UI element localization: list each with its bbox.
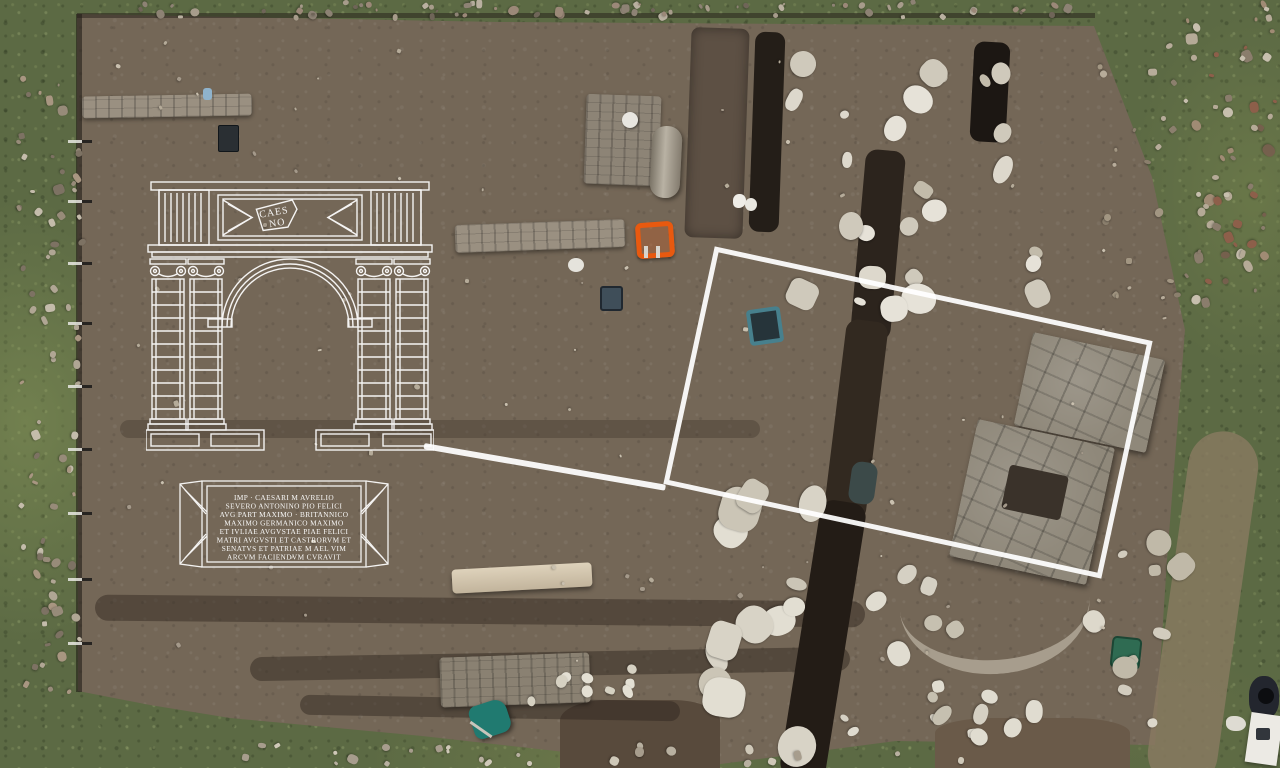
stone	[929, 702, 955, 728]
stone	[1096, 599, 1101, 603]
stone	[30, 429, 41, 441]
stone	[482, 188, 484, 192]
stone	[1221, 277, 1230, 286]
stone	[939, 13, 947, 21]
stone	[1079, 606, 1109, 636]
survey-peg	[68, 448, 82, 451]
stone	[31, 568, 41, 579]
stone	[1232, 218, 1243, 229]
stone	[1253, 289, 1257, 294]
stone	[896, 213, 922, 239]
stone	[334, 761, 339, 766]
stone	[32, 480, 39, 485]
stone	[37, 419, 42, 425]
stone	[40, 538, 46, 545]
stone	[170, 4, 175, 9]
stone	[767, 756, 777, 766]
stone	[1161, 296, 1166, 301]
stone	[1254, 17, 1257, 21]
stone	[625, 662, 639, 676]
stone	[893, 750, 900, 757]
stone	[464, 3, 472, 9]
stone	[638, 3, 641, 6]
stone	[1152, 625, 1172, 640]
stone	[47, 590, 60, 603]
stone	[70, 612, 81, 623]
stone	[28, 305, 38, 315]
stone	[624, 574, 630, 579]
stone	[346, 753, 360, 766]
stone	[1213, 105, 1219, 110]
stone	[1167, 278, 1174, 283]
stone	[49, 557, 62, 570]
stone	[604, 685, 616, 695]
stone	[352, 5, 357, 9]
stone	[721, 109, 724, 111]
stone	[1249, 190, 1259, 199]
stone	[38, 90, 42, 94]
stone	[293, 168, 298, 173]
stone	[242, 753, 251, 762]
stone	[1126, 258, 1132, 264]
stone	[324, 8, 334, 18]
inscription-line: ARCVM FACIENDVM CVRAVIT	[227, 553, 341, 562]
stone	[737, 5, 739, 8]
stone	[42, 621, 47, 627]
stone	[1190, 53, 1198, 62]
stone	[1161, 115, 1167, 120]
stone	[57, 84, 60, 87]
stone	[50, 241, 59, 248]
stone	[778, 60, 780, 63]
stone	[576, 659, 578, 662]
stone	[920, 197, 950, 225]
stone	[476, 0, 482, 8]
stone	[1227, 147, 1234, 154]
stone	[49, 284, 59, 294]
stone	[1146, 529, 1173, 557]
stone	[887, 4, 892, 11]
stone	[1117, 549, 1129, 559]
stone	[624, 265, 629, 270]
stone	[409, 749, 413, 754]
stone	[785, 139, 790, 144]
survey-peg	[68, 578, 82, 581]
stone	[665, 745, 678, 757]
stone	[435, 9, 439, 13]
stone	[1168, 125, 1177, 134]
stone	[304, 613, 307, 617]
stone	[77, 238, 87, 248]
stone	[462, 12, 468, 18]
survey-peg	[68, 385, 82, 388]
stone	[579, 671, 594, 685]
stone	[258, 742, 266, 748]
stone	[1183, 273, 1189, 279]
stone	[668, 9, 673, 14]
stone	[1219, 154, 1226, 162]
stone	[945, 604, 950, 609]
stone	[19, 75, 27, 83]
stone	[1204, 277, 1213, 284]
stone	[532, 10, 541, 19]
stone	[396, 48, 401, 53]
stone	[839, 193, 845, 198]
stone	[191, 8, 200, 17]
stone	[358, 3, 363, 8]
stone	[991, 121, 1015, 147]
stone	[175, 642, 181, 648]
stone	[296, 7, 304, 15]
stone	[30, 190, 35, 194]
stone	[839, 713, 850, 723]
stone	[1174, 291, 1181, 297]
stone	[252, 151, 257, 157]
stone	[1201, 297, 1211, 308]
stone	[38, 553, 44, 560]
stone	[160, 480, 164, 484]
stone	[879, 112, 909, 145]
stone	[580, 282, 583, 285]
stone	[49, 503, 58, 511]
survey-peg	[68, 262, 82, 265]
stone	[619, 454, 622, 458]
stone	[115, 64, 121, 70]
stone	[919, 575, 939, 597]
stone	[1250, 102, 1260, 114]
stone	[880, 554, 883, 557]
stone	[516, 752, 522, 758]
stone	[1101, 625, 1106, 630]
stone	[137, 343, 141, 347]
stone	[422, 2, 430, 10]
stone	[551, 565, 556, 570]
stone	[744, 744, 755, 756]
stone	[49, 249, 56, 255]
stone	[635, 747, 644, 758]
stone	[273, 742, 280, 748]
stone	[782, 595, 806, 617]
arch-drawing-overlay: CAES NO	[146, 179, 434, 452]
stone	[832, 4, 835, 7]
stone	[608, 755, 620, 767]
stone	[1229, 155, 1237, 162]
stone	[54, 630, 64, 640]
stone	[1115, 294, 1119, 299]
stone	[894, 561, 921, 588]
stone	[1154, 144, 1162, 152]
stone	[924, 651, 928, 655]
stone	[365, 1, 371, 8]
stone	[493, 6, 497, 10]
stone	[127, 505, 132, 510]
stone	[990, 61, 1012, 85]
stone	[58, 168, 65, 175]
stone	[262, 8, 267, 13]
stone	[884, 637, 914, 669]
stone	[48, 218, 56, 228]
stone	[1233, 242, 1238, 247]
stone	[1011, 183, 1016, 188]
stone	[20, 265, 27, 273]
stone	[294, 14, 300, 21]
stone	[783, 87, 805, 113]
stone	[1183, 98, 1188, 103]
stone	[18, 132, 25, 139]
stone	[957, 757, 964, 765]
stone	[32, 451, 41, 460]
stone	[436, 744, 444, 752]
stone	[57, 106, 68, 117]
stone	[1258, 250, 1270, 262]
stone	[1272, 99, 1277, 103]
stone	[584, 9, 590, 15]
survey-peg	[68, 512, 82, 515]
stone	[52, 183, 65, 196]
stone	[737, 592, 743, 598]
aerial-photo: CAES NO	[0, 0, 1280, 768]
stone	[178, 15, 183, 19]
stone	[1260, 142, 1277, 159]
stone	[155, 8, 166, 19]
stone	[505, 403, 508, 406]
stone	[1270, 29, 1275, 34]
stone	[785, 576, 809, 594]
stone	[28, 290, 37, 299]
stone	[429, 4, 435, 11]
stone	[1147, 717, 1159, 728]
stone	[561, 582, 564, 585]
stone	[977, 72, 992, 89]
stone	[40, 662, 46, 669]
stone	[31, 663, 38, 670]
stone	[56, 211, 66, 221]
stone	[479, 756, 484, 762]
stone	[1239, 250, 1246, 259]
stone	[1117, 683, 1133, 696]
stone	[311, 13, 315, 15]
stone	[1209, 73, 1215, 77]
stone	[50, 351, 58, 359]
stone	[1133, 128, 1137, 133]
stone	[1265, 14, 1273, 22]
stone	[988, 152, 1016, 186]
stone	[72, 492, 76, 497]
stone	[1263, 6, 1269, 12]
inscription-overlay: IMP · CAESARI M AVRELIO SEVERO ANTONINO …	[176, 476, 392, 572]
stone	[1171, 79, 1178, 86]
stone	[393, 14, 398, 21]
stone	[704, 4, 710, 12]
stone	[943, 618, 966, 641]
stone	[1241, 259, 1254, 273]
stone	[839, 110, 850, 120]
stone	[1246, 239, 1258, 250]
stone	[41, 315, 49, 325]
survey-peg	[68, 200, 82, 203]
stone	[1267, 112, 1274, 120]
stone	[58, 454, 67, 462]
stone	[56, 650, 67, 662]
stone	[622, 4, 630, 13]
stone	[773, 13, 778, 18]
stone	[879, 656, 885, 662]
stone	[73, 325, 78, 330]
stone	[34, 207, 45, 218]
stone	[1212, 195, 1223, 207]
stone	[971, 702, 991, 726]
stone	[317, 77, 320, 80]
survey-peg	[68, 322, 82, 325]
stone	[18, 380, 24, 386]
stone	[1211, 222, 1222, 232]
stone	[15, 139, 22, 145]
stone	[77, 214, 82, 220]
stone	[806, 561, 809, 564]
stone	[648, 577, 654, 583]
stone	[1127, 285, 1132, 289]
stone	[1212, 175, 1219, 180]
stone	[1098, 64, 1103, 70]
stone	[333, 750, 338, 755]
stone	[1163, 548, 1199, 584]
stone	[74, 150, 83, 158]
stone	[1148, 68, 1157, 76]
stone	[742, 2, 750, 10]
stone	[294, 108, 297, 112]
survey-peg	[68, 140, 82, 143]
stone	[429, 13, 434, 20]
stone	[773, 721, 822, 768]
stone	[164, 40, 168, 45]
stone	[23, 681, 30, 689]
stone	[1114, 148, 1118, 152]
stone	[1185, 32, 1198, 44]
stone	[761, 565, 763, 567]
stone	[73, 359, 81, 368]
stone	[21, 153, 28, 160]
stone	[71, 187, 77, 193]
stone	[18, 502, 25, 509]
stone	[65, 304, 71, 312]
stone	[1162, 317, 1166, 320]
stone	[1247, 183, 1254, 190]
stone	[28, 473, 34, 480]
stone	[785, 45, 822, 82]
stone	[580, 684, 594, 699]
stone	[842, 151, 853, 168]
stone	[73, 333, 82, 342]
stone	[1261, 51, 1272, 62]
stone	[507, 4, 520, 16]
stone	[864, 8, 875, 19]
stone	[912, 179, 936, 201]
stone	[1148, 564, 1161, 576]
stone	[1025, 700, 1042, 723]
stone	[67, 560, 77, 571]
stone	[454, 11, 459, 16]
stone	[342, 0, 349, 6]
stone	[44, 643, 50, 648]
stone	[1165, 42, 1173, 50]
stone	[846, 725, 860, 738]
stone	[1260, 225, 1266, 231]
stone	[45, 255, 51, 261]
stone	[1192, 22, 1203, 33]
stone	[1225, 94, 1233, 102]
stone	[1221, 252, 1230, 259]
arch-fragment: CAES NO	[256, 199, 300, 232]
stone	[698, 4, 704, 10]
stone	[650, 7, 655, 12]
stone	[71, 431, 79, 440]
survey-peg	[68, 642, 82, 645]
stone	[45, 95, 53, 105]
stone	[1195, 192, 1202, 199]
stone	[1153, 207, 1165, 219]
stone	[306, 10, 317, 21]
stone	[383, 760, 391, 767]
stone	[50, 154, 54, 158]
stone	[1262, 212, 1268, 218]
stone	[158, 105, 162, 109]
stone	[484, 758, 494, 767]
stone	[527, 696, 536, 707]
stone	[66, 689, 72, 695]
stone	[1214, 52, 1219, 57]
stone	[896, 1, 904, 9]
stone	[923, 615, 942, 632]
stone	[640, 587, 645, 591]
stone	[527, 761, 533, 767]
stone	[574, 349, 577, 352]
stone	[724, 183, 730, 189]
stone	[1113, 162, 1118, 167]
stone	[465, 279, 469, 283]
stone	[612, 3, 620, 9]
stone	[1111, 656, 1138, 680]
stone	[931, 680, 945, 694]
stone	[900, 14, 905, 18]
stone	[1062, 3, 1073, 14]
stone	[50, 579, 56, 585]
stone	[20, 543, 27, 550]
stone	[1000, 715, 1025, 740]
stone	[862, 588, 890, 615]
stone	[137, 6, 143, 12]
stone	[701, 675, 749, 720]
stone	[1101, 248, 1106, 253]
stone	[1220, 105, 1234, 119]
stone	[662, 10, 667, 16]
stone	[1143, 159, 1151, 165]
stone	[567, 407, 571, 411]
stone	[375, 9, 378, 12]
stone	[43, 557, 50, 562]
stone	[1190, 118, 1203, 132]
stone	[631, 8, 638, 17]
stone	[381, 744, 389, 751]
stone	[1050, 2, 1059, 10]
stone	[857, 1, 866, 10]
stone	[176, 76, 182, 82]
stone	[1099, 69, 1109, 79]
stone	[743, 758, 753, 768]
stone	[1049, 12, 1055, 18]
stone	[45, 304, 56, 314]
stone	[843, 2, 850, 8]
stone	[1021, 276, 1053, 310]
